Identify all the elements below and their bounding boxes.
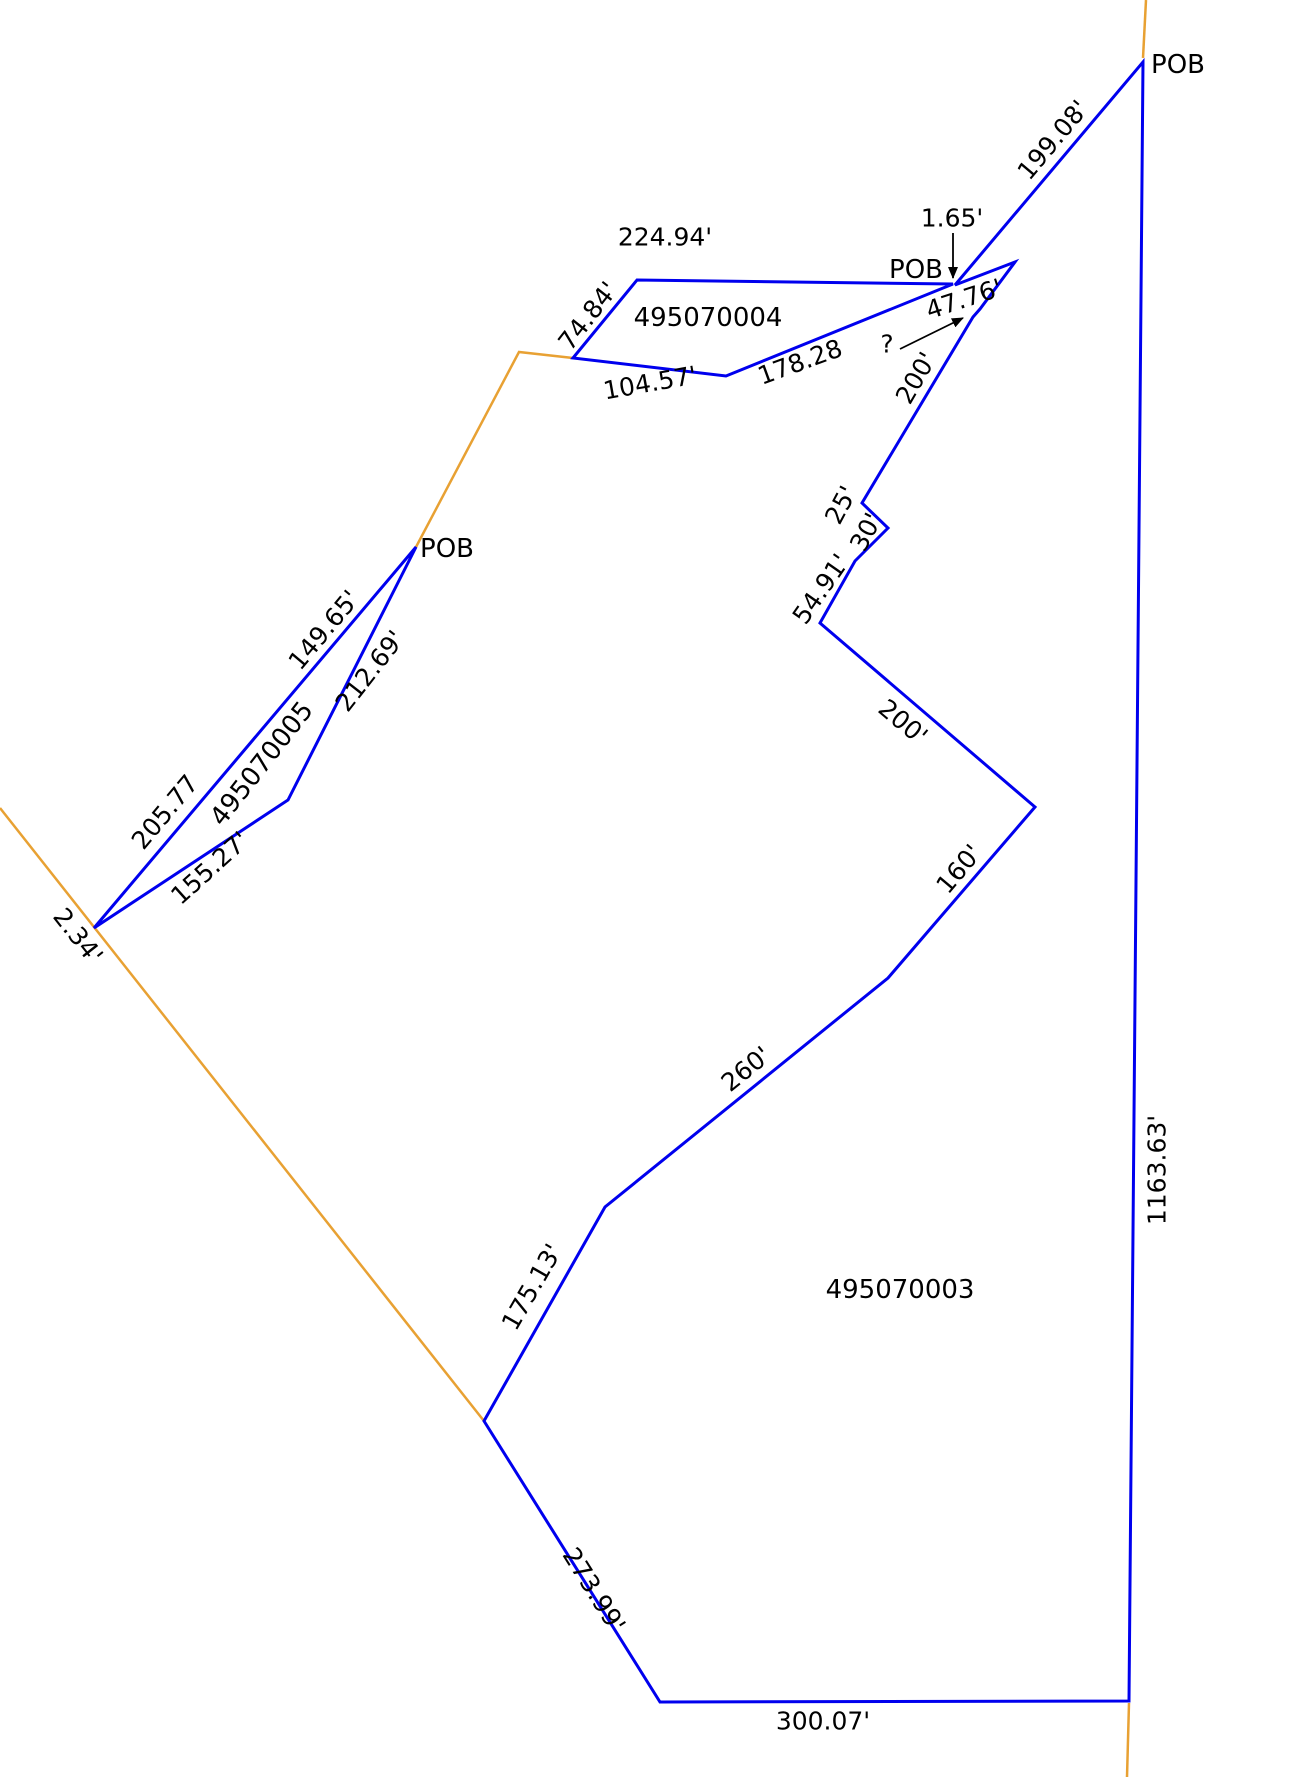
parcel-id-label-495070003: 495070003 <box>826 1275 975 1305</box>
parcel-id-label-495070005: 495070005 <box>204 696 319 832</box>
dimension-label-149-65: 149.65' <box>283 585 366 676</box>
pob-label-pob: POB <box>889 255 943 285</box>
parcel-boundary-495070005 <box>94 547 416 928</box>
adjoiner-boundary-line <box>1143 0 1146 58</box>
dimension-label-54-91: 54.91' <box>787 549 856 630</box>
adjoiner-boundary-line <box>0 808 484 1421</box>
dimension-label-273-99: 273.99' <box>557 1542 632 1637</box>
dimension-label-74-84: 74.84' <box>552 276 623 356</box>
dimension-label-q: ? <box>880 330 893 359</box>
dimension-label-1163-63: 1163.63' <box>1143 1115 1172 1225</box>
dimension-label-160: 160' <box>930 839 987 899</box>
plat-svg: POB199.08'1.65'POB224.94'49507000474.84'… <box>0 0 1291 1777</box>
dimension-label-200: 200' <box>873 693 933 750</box>
dimension-label-1-65: 1.65' <box>921 204 984 233</box>
dimension-label-224-94: 224.94' <box>618 223 712 252</box>
dimension-label-260: 260' <box>716 1041 777 1098</box>
adjoiner-boundary-line <box>416 352 573 547</box>
dimension-label-199-08: 199.08' <box>1012 95 1095 186</box>
parcel-id-label-495070004: 495070004 <box>634 303 783 333</box>
adjoiner-boundary-line <box>1127 1703 1129 1777</box>
dimension-label-175-13: 175.13' <box>496 1239 568 1335</box>
dimension-label-178-28: 178.28 <box>754 333 846 390</box>
pob-label-pob: POB <box>1151 50 1205 80</box>
dimension-label-200: 200' <box>890 347 942 409</box>
pob-label-pob: POB <box>420 534 474 564</box>
dimension-label-300-07: 300.07' <box>776 1707 870 1736</box>
dimension-label-155-27: 155.27' <box>165 826 255 911</box>
plat-diagram: POB199.08'1.65'POB224.94'49507000474.84'… <box>0 0 1291 1777</box>
